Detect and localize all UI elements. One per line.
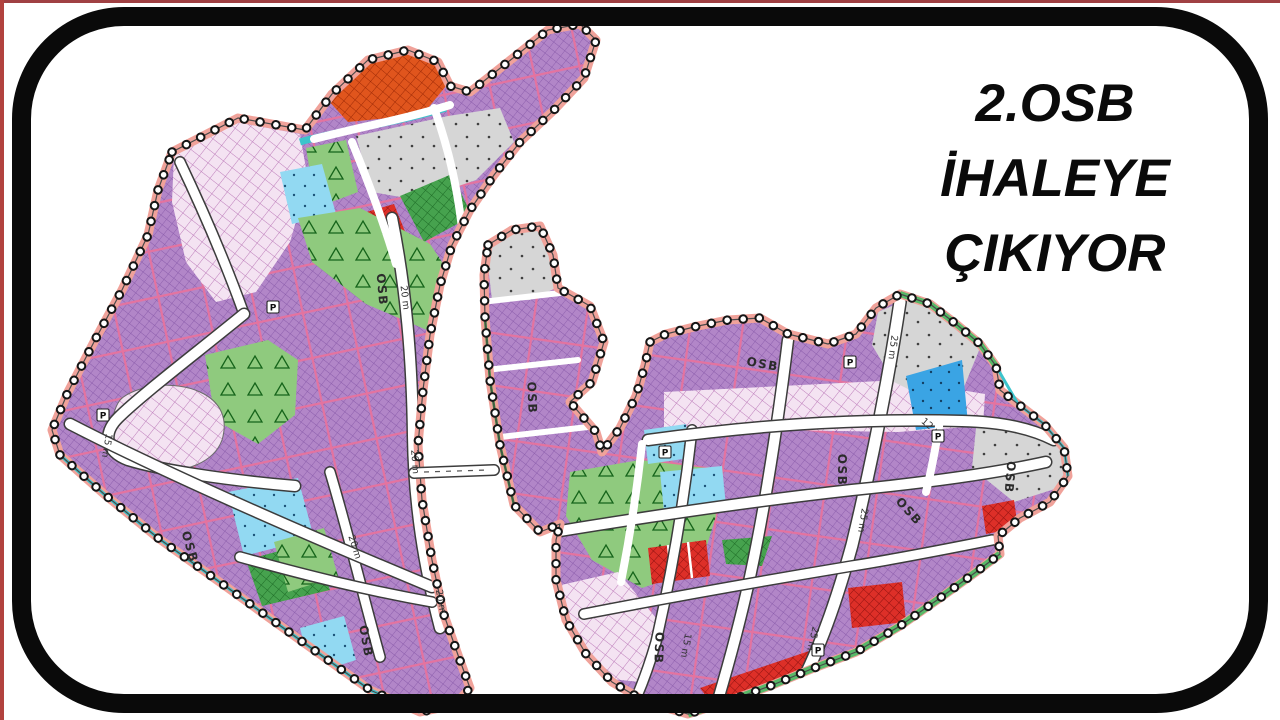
parcel-red-sr (848, 582, 906, 628)
connector-road (414, 470, 494, 473)
headline-line-3: ÇIKIYOR (915, 216, 1195, 291)
top-edge-line (0, 0, 1280, 3)
parking-marker: P (659, 446, 671, 459)
headline: 2.OSB İHALEYE ÇIKIYOR (915, 66, 1195, 291)
parking-marker: P (812, 644, 824, 657)
svg-text:P: P (815, 647, 822, 657)
map-label-osb: OSB (835, 454, 849, 487)
parking-marker: P (97, 409, 109, 422)
left-edge-line (0, 0, 4, 720)
svg-text:P: P (935, 433, 942, 443)
map-label-road: 20 m (408, 449, 421, 474)
headline-line-2: İHALEYE (915, 141, 1195, 216)
news-thumbnail[interactable]: OSBOSBOSBOSBOSBOSBOSBOSBOSB20 m20 m20 m2… (0, 0, 1280, 720)
headline-line-1: 2.OSB (915, 66, 1195, 141)
parking-marker: P (932, 430, 944, 443)
parking-marker: P (267, 301, 279, 314)
map-label-osb: OSB (1002, 461, 1019, 495)
svg-text:P: P (847, 359, 854, 369)
svg-text:P: P (100, 412, 107, 422)
map-label-osb: OSB (651, 632, 666, 665)
svg-text:P: P (270, 304, 277, 314)
map-label-osb: OSB (524, 381, 539, 414)
svg-text:P: P (662, 449, 669, 459)
map-label-osb: OSB (374, 273, 391, 307)
parking-marker: P (844, 356, 856, 369)
